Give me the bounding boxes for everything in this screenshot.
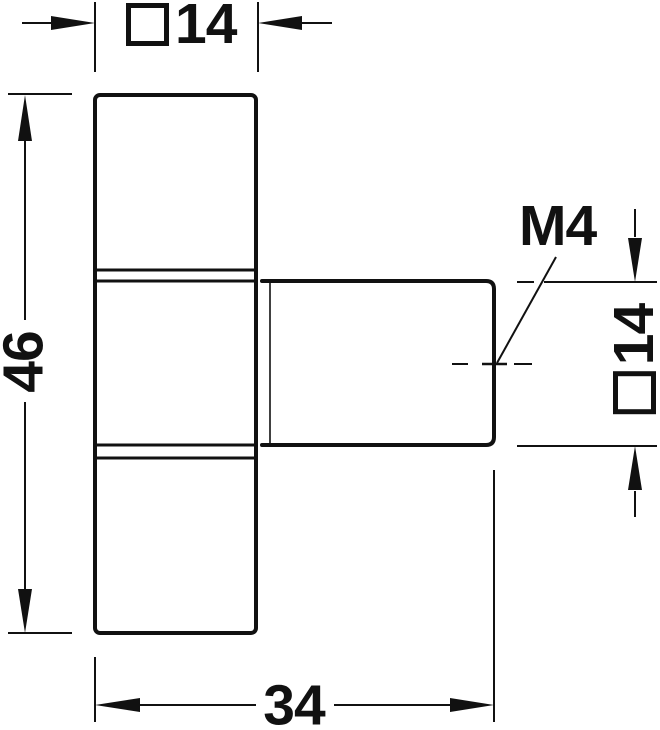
arrow-left-icon (95, 698, 140, 712)
dim-label-left: 46 (0, 331, 53, 392)
arrow-right-icon (450, 698, 494, 712)
dim-value-right: 14 (611, 304, 657, 365)
arrow-up-icon (18, 95, 32, 141)
dim-label-right: 14 (611, 304, 657, 414)
dim-label-top: 14 (126, 2, 236, 46)
square-profile-icon (126, 3, 169, 46)
arrow-down-icon (628, 238, 642, 282)
arrow-down-icon (18, 589, 32, 633)
technical-drawing: 14 46 14 M4 34 (0, 0, 660, 730)
drawing-linework (0, 0, 660, 730)
thread-leader-linework (452, 257, 556, 364)
arrow-left-icon (258, 16, 302, 30)
dim-value-top: 14 (175, 1, 236, 47)
arrow-right-icon (51, 16, 95, 30)
knob-head-outline (95, 95, 256, 633)
dim-label-bottom: 34 (263, 678, 324, 730)
arrow-up-icon (628, 446, 642, 490)
square-profile-icon (613, 371, 656, 414)
thread-label: M4 (519, 198, 596, 255)
